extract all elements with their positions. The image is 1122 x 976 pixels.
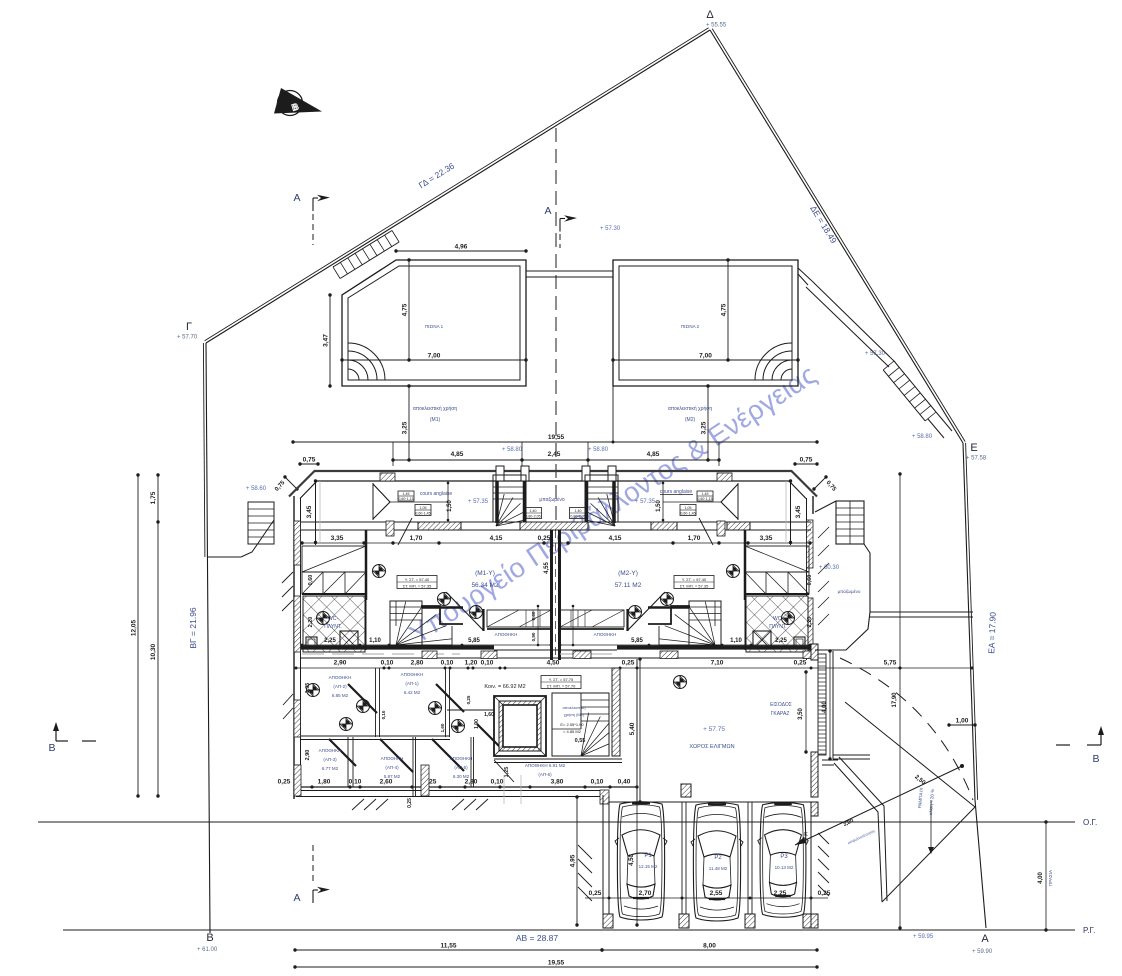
svg-text:1,00: 1,00 [956,718,969,725]
svg-text:4,95: 4,95 [570,854,577,867]
svg-text:ΑΠΟΘΗΚΗ: ΑΠΟΘΗΚΗ [401,672,424,677]
svg-text:ΣΤ. ΜΠ. = 57.70: ΣΤ. ΜΠ. = 57.70 [547,683,576,688]
svg-text:0,25: 0,25 [794,660,807,667]
svg-text:4,75: 4,75 [721,303,728,316]
svg-text:6.85 Μ2: 6.85 Μ2 [332,693,349,698]
svg-text:(Μ1): (Μ1) [430,417,441,423]
svg-text:A: A [293,192,300,204]
svg-text:4,85: 4,85 [647,451,660,458]
svg-text:1,70: 1,70 [410,535,423,542]
svg-text:5,75: 5,75 [884,660,897,667]
svg-text:ΕΙΣΟΔΟΣ: ΕΙΣΟΔΟΣ [770,702,792,708]
svg-text:7,00: 7,00 [428,353,441,360]
svg-text:Δ: Δ [706,9,714,21]
svg-text:0,10: 0,10 [481,660,494,667]
svg-text:cours anglaise: cours anglaise [660,489,692,495]
svg-text:57.11 Μ2: 57.11 Μ2 [615,582,642,589]
svg-text:0,55: 0,55 [575,738,586,744]
svg-text:2,55: 2,55 [710,890,723,897]
svg-text:2,70: 2,70 [639,890,652,897]
svg-text:(ΑΠ-4): (ΑΠ-4) [385,765,399,770]
svg-text:3,80: 3,80 [551,779,564,786]
svg-text:1,60: 1,60 [484,712,494,718]
svg-text:ΧΩΡΟΣ ΕΛΙΓΜΩΝ: ΧΩΡΟΣ ΕΛΙΓΜΩΝ [689,744,734,750]
svg-text:0,25: 0,25 [622,660,635,667]
svg-text:(Μ1-Υ): (Μ1-Υ) [475,570,495,577]
svg-text:0,75: 0,75 [303,457,316,464]
svg-text:Γ: Γ [186,321,192,333]
svg-text:1,10: 1,10 [730,638,742,644]
svg-text:1,25: 1,25 [504,767,510,778]
svg-text:ΓΚΑΡΑΖ: ΓΚΑΡΑΖ [771,711,790,717]
svg-text:1,45: 1,45 [403,492,410,496]
svg-text:ΑΒ = 28.87: ΑΒ = 28.87 [516,933,559,943]
svg-text:ΠΛΥΝΤ.: ΠΛΥΝΤ. [324,624,341,630]
svg-text:+ 58.80: + 58.80 [912,434,933,440]
svg-text:1,60: 1,60 [440,723,445,732]
svg-text:3,25: 3,25 [402,421,409,434]
svg-text:B: B [1092,753,1099,765]
svg-text:0,80·2,05: 0,80·2,05 [570,515,585,519]
svg-text:2,45: 2,45 [548,451,561,458]
svg-text:0,10: 0,10 [381,710,386,719]
svg-text:1,90: 1,90 [474,719,480,729]
svg-text:7,10: 7,10 [711,660,724,667]
svg-text:(ΑΠ-1): (ΑΠ-1) [405,681,419,686]
svg-text:4,96: 4,96 [455,244,468,251]
svg-text:ΑΠΟΘΗΚΗ: ΑΠΟΘΗΚΗ [450,756,473,761]
svg-text:4,55: 4,55 [544,562,550,574]
svg-text:1,40: 1,40 [530,509,537,513]
svg-text:4,15: 4,15 [490,535,503,542]
svg-text:ΑΠΟΘΗΚΗ: ΑΠΟΘΗΚΗ [329,675,352,680]
svg-text:ΠΛΥΝΤ.: ΠΛΥΝΤ. [769,624,786,630]
svg-text:56.34 Μ2: 56.34 Μ2 [471,582,498,589]
svg-text:ΑΠΟΘΗΚΗ: ΑΠΟΘΗΚΗ [319,748,342,753]
svg-text:A: A [981,933,989,945]
svg-text:2,25: 2,25 [775,638,787,644]
svg-text:ΑΠΟΘΗΚΗ: ΑΠΟΘΗΚΗ [594,632,617,637]
svg-text:2,20: 2,20 [308,617,314,628]
svg-text:7,00: 7,00 [699,353,712,360]
svg-text:0,60·1,45: 0,60·1,45 [415,512,430,516]
svg-text:3,25: 3,25 [701,421,708,434]
svg-text:8,00: 8,00 [703,943,716,950]
svg-text:ΑΠΟΘΗΚΗ: ΑΠΟΘΗΚΗ [495,632,518,637]
svg-text:12,05: 12,05 [131,619,138,636]
svg-text:0,25: 0,25 [538,535,551,542]
svg-text:3,45: 3,45 [306,505,313,518]
svg-text:ΣΤ. ΜΠ. = 57.35: ΣΤ. ΜΠ. = 57.35 [680,583,709,588]
svg-text:B: B [48,742,55,754]
svg-text:+ 57.35: + 57.35 [635,499,656,505]
svg-text:1,20: 1,20 [465,660,478,667]
svg-text:5,85: 5,85 [468,638,480,644]
svg-text:Υ. ΣΤ. = 57.40: Υ. ΣΤ. = 57.40 [405,577,430,582]
svg-text:0,25: 0,25 [407,798,413,808]
svg-text:(ΑΠ-6): (ΑΠ-6) [538,772,552,777]
svg-text:3,35: 3,35 [331,535,344,542]
svg-text:10,30: 10,30 [150,643,157,660]
svg-text:3,45: 3,45 [795,505,802,518]
svg-text:+ 57.58: + 57.58 [966,456,987,462]
svg-text:0,10: 0,10 [381,660,394,667]
svg-text:1,05: 1,05 [685,506,692,510]
svg-text:3,50: 3,50 [798,708,804,720]
svg-text:4,85: 4,85 [451,451,464,458]
svg-text:1,50: 1,50 [656,500,662,512]
svg-text:11.48 Μ2: 11.48 Μ2 [709,866,728,871]
svg-text:χρήση (Μ2): χρήση (Μ2) [564,712,585,717]
svg-text:Ε= 2.55*1.90: Ε= 2.55*1.90 [560,722,584,727]
svg-text:0,60·1,15: 0,60·1,15 [697,497,712,501]
svg-text:A: A [544,205,551,217]
svg-text:Κοιν. = 66.92 Μ2: Κοιν. = 66.92 Μ2 [484,684,525,690]
svg-text:5,85: 5,85 [631,638,643,644]
svg-text:+ 61.00: + 61.00 [197,947,218,953]
svg-text:Υ. ΣΤ. = 57.75: Υ. ΣΤ. = 57.75 [549,677,574,682]
svg-text:Ο.Γ.: Ο.Γ. [1083,818,1097,827]
svg-text:αποκλειστική: αποκλειστική [562,705,585,710]
svg-text:ΒΓ = 21.96: ΒΓ = 21.96 [188,607,198,649]
svg-text:0,60: 0,60 [308,575,314,586]
svg-text:+ 57.70: + 57.70 [177,335,198,341]
svg-text:0,90: 0,90 [531,632,536,641]
svg-text:4,00: 4,00 [822,701,828,713]
svg-text:1,80: 1,80 [318,779,331,786]
svg-text:0,60·1,15: 0,60·1,15 [398,497,413,501]
svg-text:= 4.85 Μ2: = 4.85 Μ2 [563,729,582,734]
svg-text:1,75: 1,75 [150,491,157,504]
svg-text:ΠΙΣΙΝΑ 1: ΠΙΣΙΝΑ 1 [425,324,444,329]
svg-text:6.42 Μ2: 6.42 Μ2 [404,690,421,695]
svg-text:1,70: 1,70 [688,535,701,542]
svg-text:cours anglaise: cours anglaise [420,491,452,497]
svg-text:4,50: 4,50 [547,660,560,667]
svg-text:1,40: 1,40 [575,509,582,513]
svg-text:0,75: 0,75 [800,457,813,464]
svg-text:0,25: 0,25 [278,779,291,786]
svg-text:5,40: 5,40 [629,722,636,735]
svg-text:2,60: 2,60 [380,779,393,786]
svg-text:0,60: 0,60 [807,575,813,586]
svg-text:+ 58.80: + 58.80 [588,447,609,453]
svg-text:0,80·2,05: 0,80·2,05 [525,515,540,519]
svg-text:(Μ2-Υ): (Μ2-Υ) [618,570,638,577]
svg-text:19,55: 19,55 [548,960,565,967]
svg-text:2,90: 2,90 [305,750,311,761]
svg-text:10.13 Μ2: 10.13 Μ2 [775,865,794,870]
svg-text:+ 59.90: + 59.90 [972,949,993,955]
svg-text:A: A [293,892,300,904]
svg-text:E: E [970,442,977,454]
svg-text:αποκλειστική χρήση: αποκλειστική χρήση [413,405,458,412]
svg-text:1,45: 1,45 [702,492,709,496]
svg-text:11,55: 11,55 [441,943,457,950]
svg-text:(ΑΠ-2): (ΑΠ-2) [333,684,347,689]
svg-text:0,60·1,45: 0,60·1,45 [680,512,695,516]
svg-text:+ 57.30: + 57.30 [600,226,621,232]
svg-text:μπαζωμένο: μπαζωμένο [539,496,565,503]
svg-text:4,15: 4,15 [609,535,622,542]
svg-text:4,75: 4,75 [402,303,409,316]
svg-text:P3: P3 [780,854,788,860]
svg-text:0,10: 0,10 [591,779,604,786]
svg-text:Υ. ΣΤ. = 57.40: Υ. ΣΤ. = 57.40 [682,577,707,582]
svg-text:1,10: 1,10 [369,638,381,644]
svg-text:2,25: 2,25 [324,638,336,644]
svg-text:ΠΡΑΣΙΑ: ΠΡΑΣΙΑ [1048,870,1053,886]
svg-text:6.77 Μ2: 6.77 Μ2 [322,766,339,771]
svg-text:+ 57.75: + 57.75 [703,726,725,733]
svg-text:0,10: 0,10 [491,779,504,786]
svg-text:0,25: 0,25 [466,695,471,704]
svg-text:ΕΑ = 17.90: ΕΑ = 17.90 [986,612,997,654]
svg-text:αποκλειστική χρήση: αποκλειστική χρήση [668,405,713,412]
svg-text:12.15 Μ2: 12.15 Μ2 [639,864,658,869]
svg-text:+ 58.60: + 58.60 [246,486,267,492]
svg-text:17,90: 17,90 [892,692,898,708]
svg-text:2,80: 2,80 [411,660,424,667]
svg-text:1,05: 1,05 [420,506,427,510]
svg-text:Ρ.Γ.: Ρ.Γ. [1083,926,1095,935]
svg-text:(ΑΠ-5): (ΑΠ-5) [454,765,468,770]
svg-text:3,35: 3,35 [760,535,773,542]
svg-text:P1: P1 [644,853,652,859]
svg-text:+ 55.55: + 55.55 [706,23,727,29]
svg-text:+ 58.80: + 58.80 [502,447,523,453]
svg-text:4,00: 4,00 [1038,872,1044,884]
svg-text:+ 57.35: + 57.35 [468,499,489,505]
svg-text:ΑΠΟΘΗΚΗ: ΑΠΟΘΗΚΗ [381,756,404,761]
svg-text:ΑΠΟΘΗΚΗ 6.91 Μ2: ΑΠΟΘΗΚΗ 6.91 Μ2 [525,763,566,768]
svg-text:0,25: 0,25 [589,890,602,897]
svg-text:+ 59.95: + 59.95 [913,934,934,940]
svg-text:(ΑΠ-3): (ΑΠ-3) [323,757,337,762]
svg-text:2,90: 2,90 [334,660,347,667]
svg-text:B: B [206,932,213,944]
svg-text:0,10: 0,10 [349,779,362,786]
svg-text:1,95: 1,95 [305,683,311,694]
svg-text:ΠΙΣΙΝΑ 2: ΠΙΣΙΝΑ 2 [681,324,700,329]
svg-text:μπαζωμένο: μπαζωμένο [838,588,861,594]
svg-text:0,10: 0,10 [441,660,454,667]
svg-text:(Μ2): (Μ2) [685,417,696,423]
svg-text:2,20: 2,20 [807,617,813,628]
svg-text:3,47: 3,47 [323,334,330,347]
svg-text:0,40: 0,40 [618,779,631,786]
svg-text:0,25: 0,25 [818,890,831,897]
svg-text:19,55: 19,55 [548,434,565,441]
svg-text:ΣΤ. ΜΠ. = 57.35: ΣΤ. ΜΠ. = 57.35 [403,583,432,588]
svg-text:P2: P2 [714,855,722,861]
svg-text:0,60: 0,60 [531,611,536,620]
